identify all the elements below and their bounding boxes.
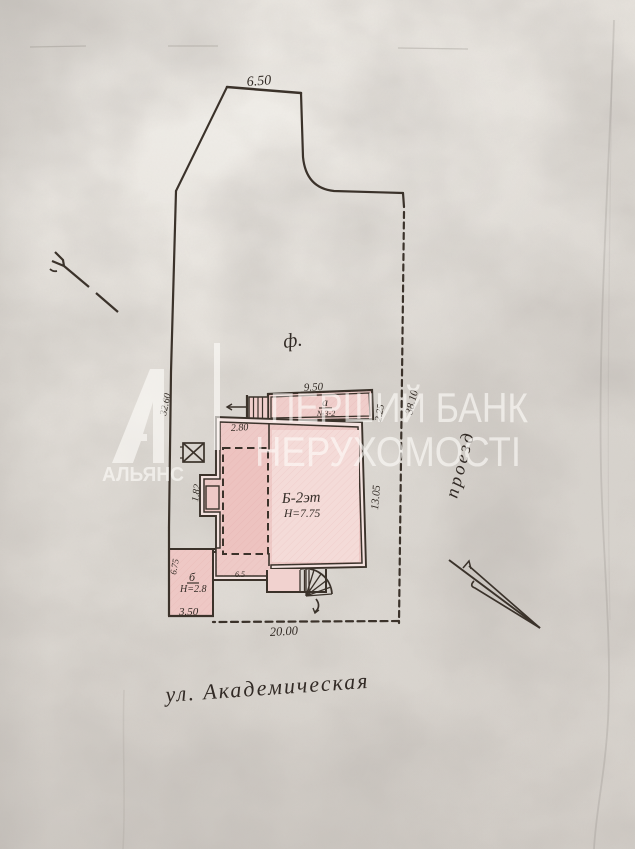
svg-text:б: б [189,570,196,584]
svg-text:3.50: 3.50 [178,606,199,618]
svg-text:2.80: 2.80 [231,422,249,434]
svg-text:6.50: 6.50 [246,73,271,90]
svg-text:Б-2эт: Б-2эт [281,490,321,507]
svg-text:АЛЬЯНС: АЛЬЯНС [102,464,184,486]
svg-text:13.05: 13.05 [369,484,383,510]
svg-text:20.00: 20.00 [269,624,299,639]
svg-text:Н=7.75: Н=7.75 [283,508,320,520]
svg-text:НЕРУХОМОСТІ: НЕРУХОМОСТІ [255,428,521,475]
svg-text:ф.: ф. [282,328,304,352]
svg-text:6.5: 6.5 [235,570,245,579]
svg-text:Н=2.8: Н=2.8 [179,584,206,595]
svg-text:ПЕРШИЙ БАНК: ПЕРШИЙ БАНК [270,383,528,431]
